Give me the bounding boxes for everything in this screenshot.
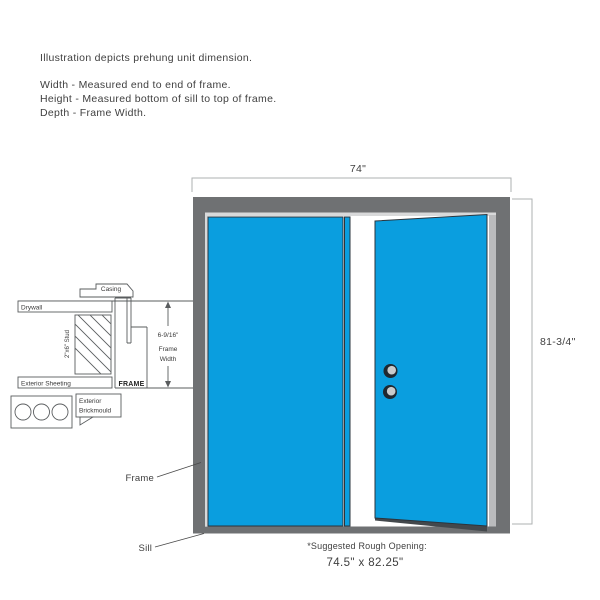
brickmould-label-line1: Exterior: [79, 398, 102, 405]
sill-callout-label: Sill: [139, 543, 152, 554]
description-intro: Illustration depicts prehung unit dimens…: [40, 52, 252, 64]
handle-bore: [384, 364, 398, 378]
description-width-definition: Width - Measured end to end of frame.: [40, 79, 231, 91]
width-dimension-label: 74": [350, 163, 366, 175]
frame-profile-label: FRAME: [119, 381, 145, 388]
rough-opening-value: 74.5" x 82.25": [326, 557, 403, 569]
astragal: [345, 217, 351, 526]
deadbolt-bore: [383, 385, 397, 399]
exterior-sheeting-label: Exterior Sheeting: [21, 381, 71, 388]
frame-head-highlight: [205, 213, 496, 217]
frame-width-label-line2: Width: [160, 356, 177, 363]
frame-width-value: 6-9/16": [158, 332, 179, 339]
frame-callout-label: Frame: [126, 473, 154, 484]
prehung-door-dimension-diagram: Illustration depicts prehung unit dimens…: [0, 0, 600, 600]
height-dimension-label: 81-3/4": [540, 336, 576, 348]
frame-head: [193, 197, 510, 214]
brickmould-label-line2: Brickmould: [79, 408, 112, 415]
stud-label: 2"x6" Stud: [65, 330, 71, 358]
brickmould-section: [11, 396, 72, 428]
diagram-canvas: Illustration depicts prehung unit dimens…: [0, 0, 600, 600]
frame-left-jamb: [193, 197, 205, 534]
stud-section: [75, 315, 111, 374]
deadbolt-knob: [387, 387, 396, 396]
frame-right-jamb: [496, 197, 510, 534]
casing-label: Casing: [101, 286, 122, 293]
drywall-label: Drywall: [21, 305, 43, 312]
handle-knob: [387, 366, 396, 375]
description-depth-definition: Depth - Frame Width.: [40, 107, 146, 119]
frame-right-jamb-face: [489, 215, 496, 527]
description-height-definition: Height - Measured bottom of sill to top …: [40, 93, 276, 105]
frame-width-label-line1: Frame: [159, 346, 178, 353]
door-panels: [208, 215, 487, 532]
rough-opening-note: *Suggested Rough Opening:: [307, 541, 427, 551]
left-door-panel: [208, 217, 343, 526]
